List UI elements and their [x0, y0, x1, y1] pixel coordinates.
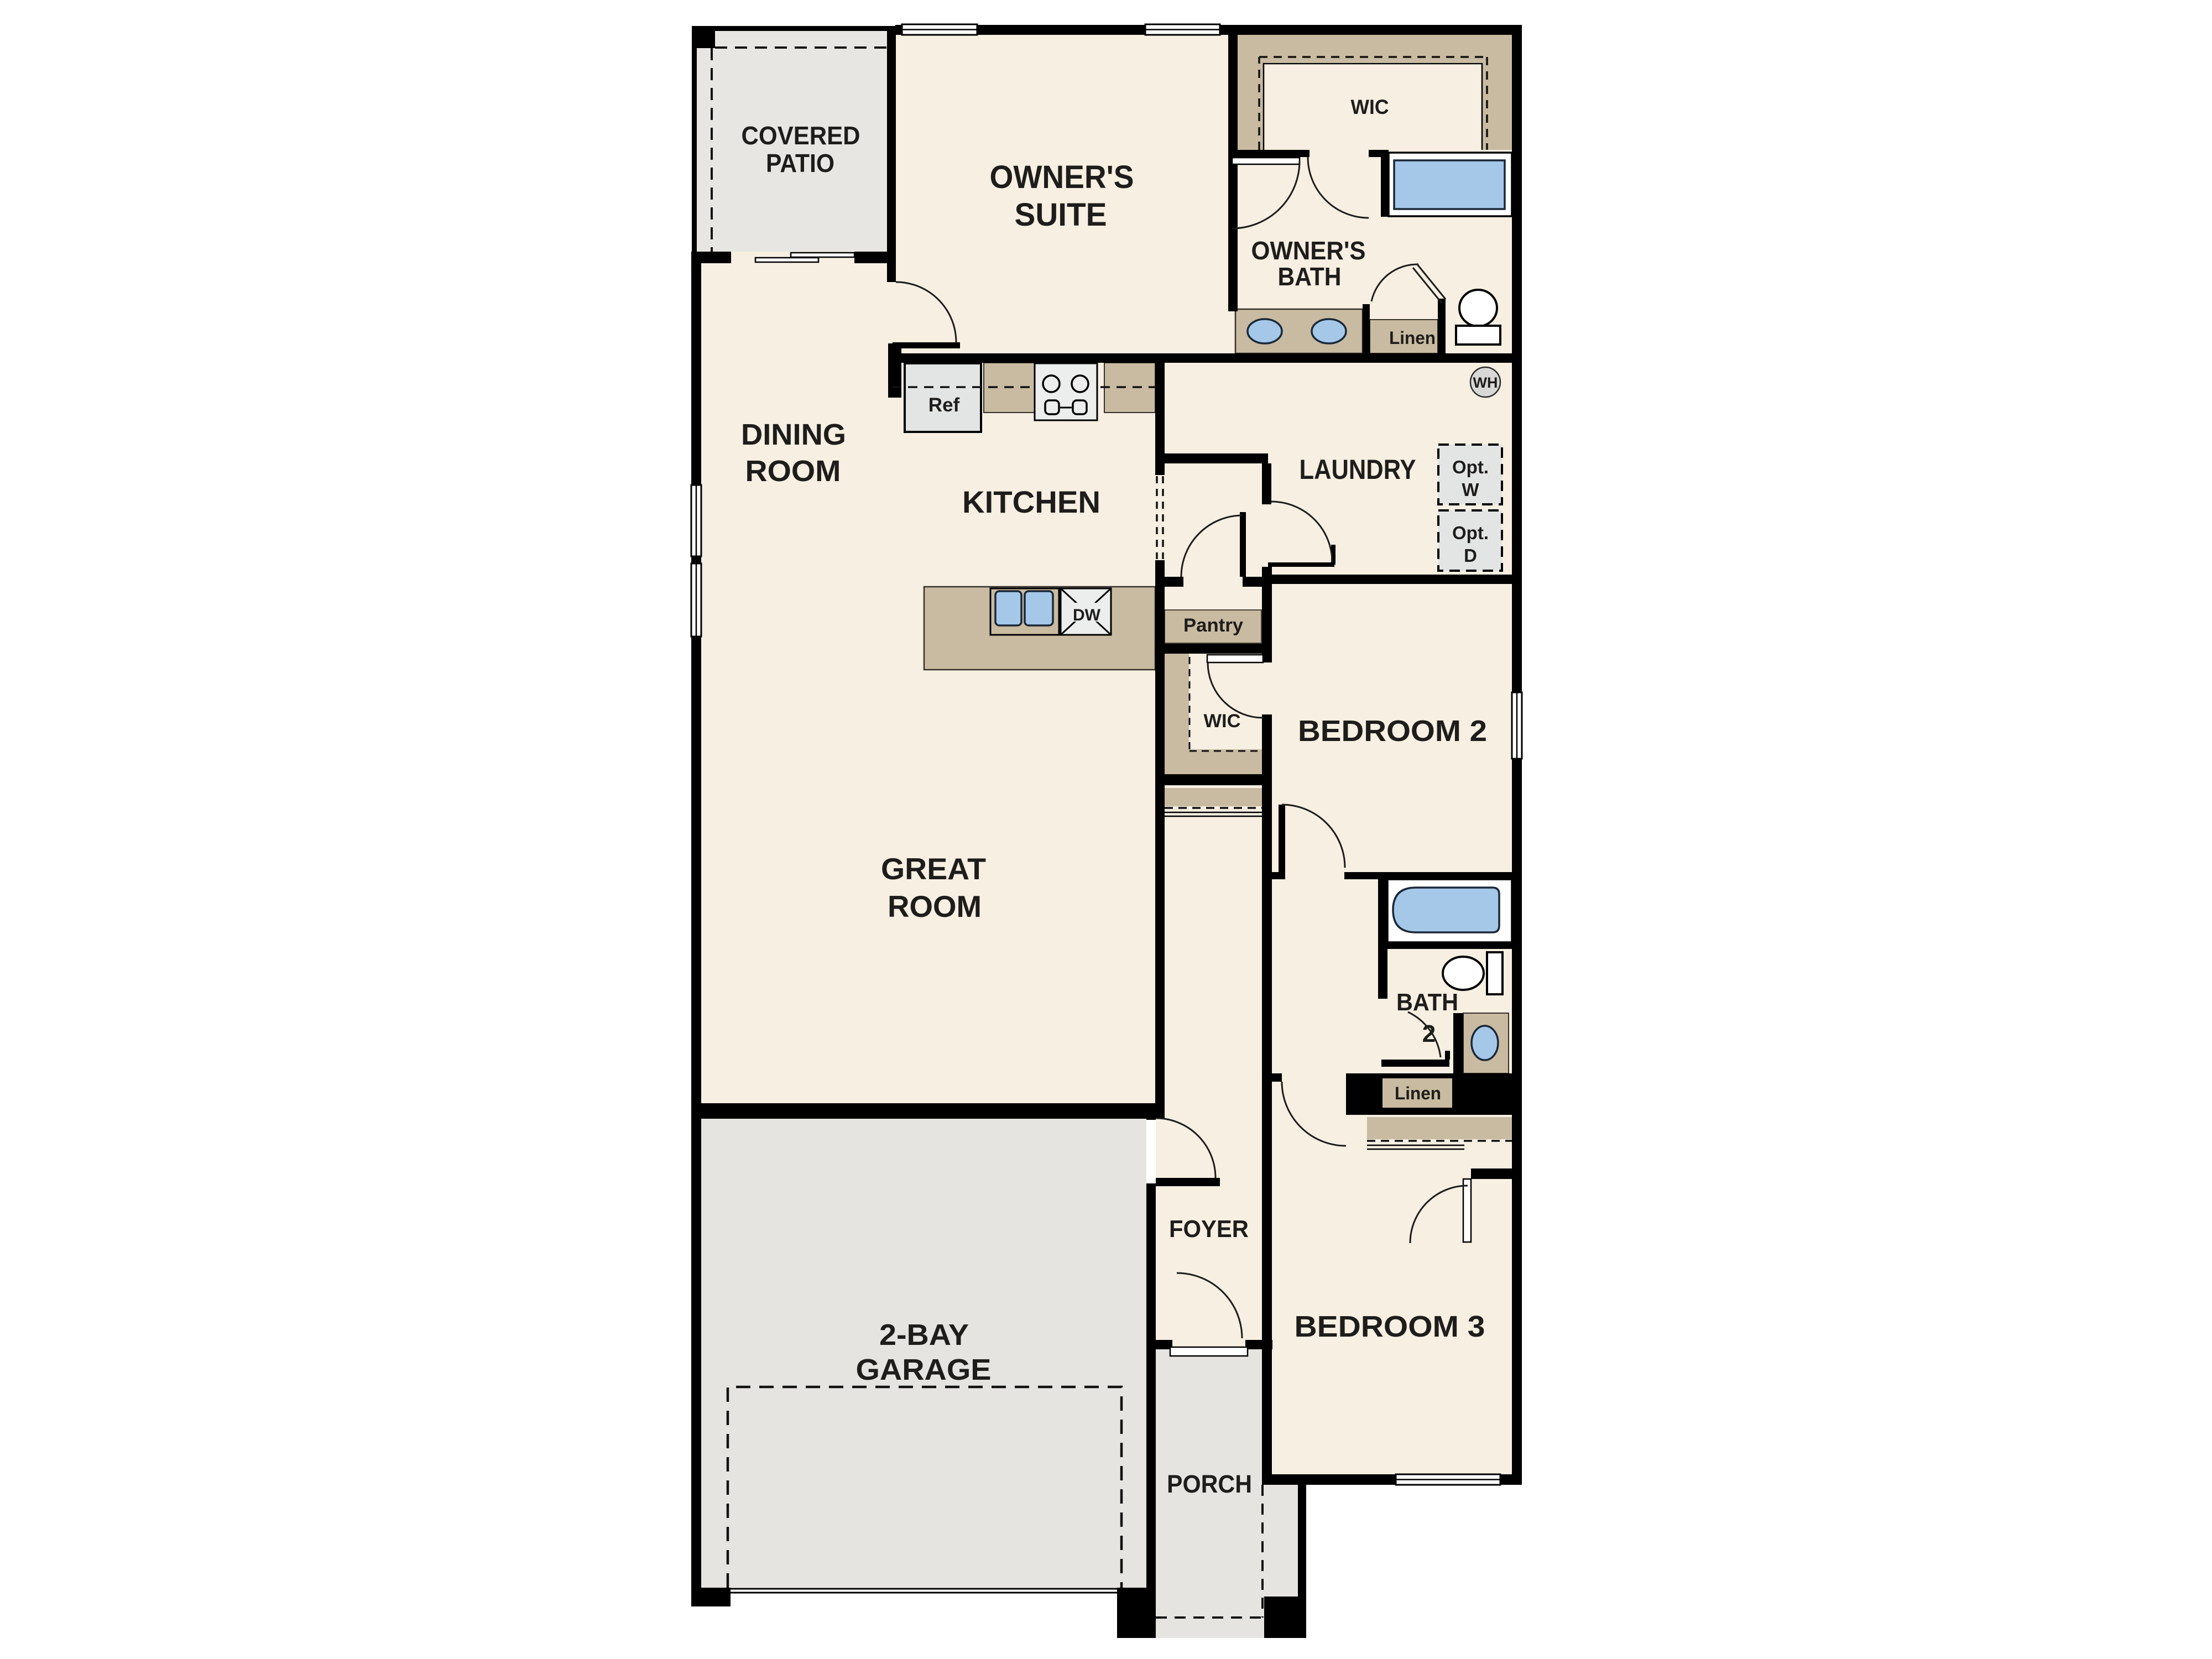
svg-text:Linen: Linen — [1389, 328, 1436, 348]
svg-text:OWNER'S: OWNER'S — [990, 159, 1134, 195]
svg-text:COVERED: COVERED — [742, 121, 860, 150]
svg-text:2-BAY: 2-BAY — [879, 1318, 969, 1352]
svg-text:Pantry: Pantry — [1183, 615, 1243, 636]
svg-text:W: W — [1462, 479, 1479, 500]
svg-text:DINING: DINING — [741, 418, 846, 451]
svg-text:PORCH: PORCH — [1167, 1470, 1252, 1498]
svg-text:GARAGE: GARAGE — [856, 1353, 992, 1386]
svg-text:2: 2 — [1422, 1020, 1436, 1047]
svg-text:Ref: Ref — [928, 394, 960, 416]
svg-text:BATH: BATH — [1278, 262, 1342, 291]
svg-text:GREAT: GREAT — [881, 852, 986, 886]
svg-text:KITCHEN: KITCHEN — [962, 484, 1100, 519]
svg-text:LAUNDRY: LAUNDRY — [1300, 454, 1416, 485]
svg-text:WIC: WIC — [1351, 96, 1389, 118]
svg-text:WH: WH — [1473, 374, 1498, 391]
svg-text:BEDROOM 2: BEDROOM 2 — [1298, 714, 1487, 748]
svg-text:ROOM: ROOM — [745, 455, 841, 488]
svg-text:FOYER: FOYER — [1169, 1215, 1249, 1243]
svg-text:DW: DW — [1073, 606, 1101, 624]
svg-text:BEDROOM 3: BEDROOM 3 — [1295, 1310, 1485, 1343]
svg-text:OWNER'S: OWNER'S — [1251, 236, 1366, 265]
svg-text:BATH: BATH — [1396, 989, 1458, 1016]
svg-text:PATIO: PATIO — [766, 149, 834, 178]
svg-text:SUITE: SUITE — [1015, 197, 1107, 233]
svg-text:ROOM: ROOM — [888, 889, 982, 924]
svg-text:Opt.: Opt. — [1452, 457, 1489, 477]
svg-text:Linen: Linen — [1395, 1083, 1441, 1103]
svg-text:WIC: WIC — [1204, 711, 1241, 732]
svg-text:D: D — [1464, 545, 1477, 566]
svg-text:Opt.: Opt. — [1452, 523, 1489, 543]
